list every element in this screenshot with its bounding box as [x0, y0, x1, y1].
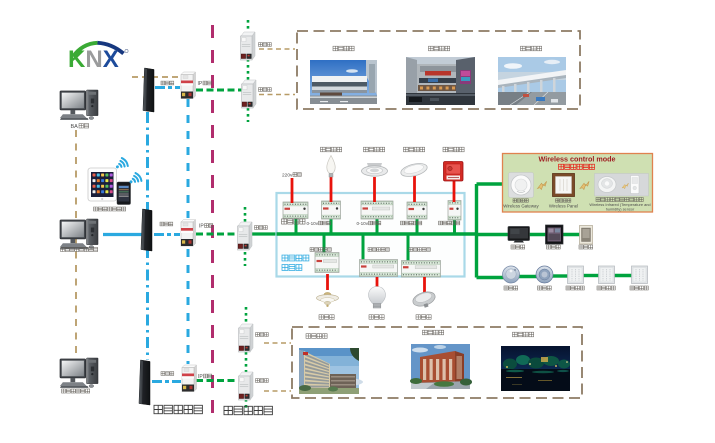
svg-text:0-10v: 0-10v — [307, 221, 319, 226]
svg-text:IP: IP — [199, 224, 204, 230]
svg-text:Wireless control mode: Wireless control mode — [538, 155, 615, 164]
svg-text:0-10v: 0-10v — [357, 221, 369, 226]
svg-text:IP: IP — [198, 81, 203, 87]
svg-text:Wireless Panel: Wireless Panel — [549, 204, 578, 209]
svg-text:BA: BA — [71, 124, 79, 130]
svg-text:humidity) sensor: humidity) sensor — [606, 206, 635, 211]
svg-text:Wireless Gateway: Wireless Gateway — [503, 204, 539, 209]
svg-text:KNX: KNX — [68, 46, 119, 73]
svg-text:220v: 220v — [282, 173, 293, 179]
svg-text:IP: IP — [198, 374, 203, 380]
